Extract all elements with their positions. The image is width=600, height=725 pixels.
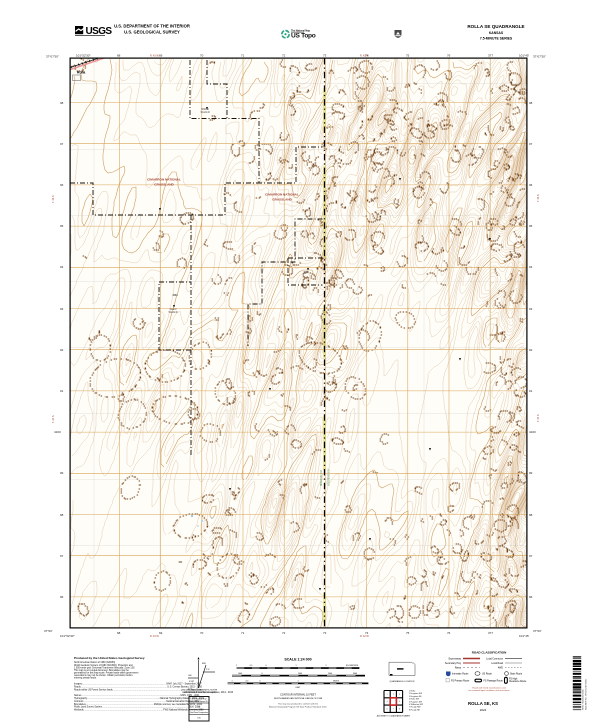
svg-text:FEET: FEET <box>296 687 302 689</box>
svg-text:377: 377 <box>488 54 493 58</box>
svg-text:1081: 1081 <box>172 294 178 297</box>
svg-text:76: 76 <box>447 54 451 58</box>
svg-text:96: 96 <box>529 595 533 599</box>
svg-text:4 Rolla SW: 4 Rolla SW <box>409 699 419 701</box>
svg-text:98: 98 <box>529 513 533 517</box>
svg-text:2: 2 <box>325 665 326 667</box>
svg-text:Clearance Route: Clearance Route <box>509 680 527 683</box>
svg-text:KANSAS: KANSAS <box>489 31 504 35</box>
svg-text:101°45′: 101°45′ <box>519 54 530 58</box>
svg-text:USGS: USGS <box>86 26 113 37</box>
svg-text:08: 08 <box>529 101 533 105</box>
svg-text:68: 68 <box>117 54 121 58</box>
svg-text:1: 1 <box>236 665 237 667</box>
svg-text:STEVENS CO: STEVENS CO <box>327 469 331 486</box>
svg-text:99: 99 <box>529 471 533 475</box>
svg-text:05: 05 <box>529 224 533 228</box>
svg-text:ROLLA SE, KS: ROLLA SE, KS <box>468 701 498 706</box>
svg-text:4100: 4100 <box>529 430 536 434</box>
svg-text:NSN. 7643014674381: NSN. 7643014674381 <box>583 689 585 710</box>
svg-text:Boundaries....................: Boundaries..............................… <box>74 703 203 706</box>
svg-text:QUADRANGLE LOCATION: QUADRANGLE LOCATION <box>390 680 415 683</box>
svg-text:02: 02 <box>529 348 533 352</box>
svg-text:T. 33 S.: T. 33 S. <box>52 195 55 203</box>
svg-text:Grid Zone Designation: Grid Zone Designation <box>190 711 208 714</box>
svg-text:37°00′: 37°00′ <box>533 629 542 633</box>
svg-text:69: 69 <box>159 631 163 635</box>
svg-text:1080: 1080 <box>303 271 309 274</box>
svg-text:75: 75 <box>406 631 410 635</box>
svg-text:71: 71 <box>241 631 245 635</box>
svg-text:Produced by the United States: Produced by the United States Geological… <box>74 656 145 660</box>
svg-text:US Topo: US Topo <box>291 33 316 40</box>
svg-text:96: 96 <box>60 595 64 599</box>
svg-text:03: 03 <box>60 307 64 311</box>
svg-text:72: 72 <box>282 631 286 635</box>
svg-text:98: 98 <box>60 513 64 517</box>
svg-text:2000: 2000 <box>328 673 332 675</box>
svg-text:CONTOUR INTERVAL 10 FEET: CONTOUR INTERVAL 10 FEET <box>280 693 316 696</box>
svg-text:03: 03 <box>529 307 533 311</box>
svg-text:69: 69 <box>159 54 163 58</box>
svg-text:Interstate Route: Interstate Route <box>452 673 469 676</box>
svg-text:377: 377 <box>488 631 493 635</box>
svg-text:Imagery.......................: Imagery.................................… <box>74 683 202 686</box>
svg-text:NGA REF NO. USGSX24K76566: NGA REF NO. USGSX24K76566 <box>584 678 587 710</box>
svg-text:ROLLA SE QUADRANGLE: ROLLA SE QUADRANGLE <box>467 24 524 29</box>
svg-text:North American Datum of 1983 (: North American Datum of 1983 (NAD83) <box>74 661 115 664</box>
svg-text:This map was produced to confo: This map was produced to conform with th… <box>278 703 319 706</box>
svg-text:GN: GN <box>188 675 192 677</box>
svg-text:06: 06 <box>60 183 64 187</box>
svg-text:DECLINATION AT CENTER OF SHEET: DECLINATION AT CENTER OF SHEET <box>182 691 216 694</box>
svg-text:04: 04 <box>529 265 533 269</box>
svg-text:7 Hough NW: 7 Hough NW <box>409 707 421 709</box>
svg-text:37°07′30″: 37°07′30″ <box>46 55 59 59</box>
svg-text:R. 43 W.: R. 43 W. <box>150 635 160 638</box>
svg-text:CIMARRON NATIONAL: CIMARRON NATIONAL <box>147 178 181 182</box>
svg-text:Windmill: Windmill <box>168 311 178 314</box>
svg-text:37°00′: 37°00′ <box>44 629 53 633</box>
svg-text:GRASSLAND: GRASSLAND <box>272 198 292 202</box>
svg-text:101°45′: 101°45′ <box>519 634 530 638</box>
svg-text:1: 1 <box>295 665 296 667</box>
svg-text:MN: MN <box>202 663 206 665</box>
svg-text:72: 72 <box>282 54 286 58</box>
svg-text:Roads with listed classificati: Roads with listed classifications and <box>472 686 506 689</box>
svg-text:0.5: 0.5 <box>250 665 253 667</box>
svg-text:68: 68 <box>117 631 121 635</box>
svg-text:National Geospatial Program US: National Geospatial Program US Topo Prod… <box>269 706 328 709</box>
svg-text:Roads.........................: Roads...................................… <box>74 685 203 688</box>
svg-text:4WD: 4WD <box>498 667 503 669</box>
svg-text:NORTH AMERICAN VERTICAL DATUM: NORTH AMERICAN VERTICAL DATUM OF 1988 <box>274 697 323 700</box>
svg-text:76: 76 <box>447 631 451 635</box>
svg-text:U.S. GEOLOGICAL SURVEY: U.S. GEOLOGICAL SURVEY <box>124 30 180 35</box>
svg-text:Local Connector: Local Connector <box>486 657 503 660</box>
svg-text:73: 73 <box>323 631 327 635</box>
svg-text:SCALE 1:24 000: SCALE 1:24 000 <box>284 658 311 662</box>
svg-text:7.5-MINUTE SERIES: 7.5-MINUTE SERIES <box>480 36 513 40</box>
svg-text:Hydrography...................: Hydrography.............................… <box>74 697 205 700</box>
svg-text:0: 0 <box>261 673 262 675</box>
svg-text:Secondary Hwy: Secondary Hwy <box>445 662 462 665</box>
svg-text:70: 70 <box>200 54 204 58</box>
svg-text:CIMARRON NATIONAL: CIMARRON NATIONAL <box>265 193 299 197</box>
svg-text:07: 07 <box>529 142 533 146</box>
svg-text:Ramp: Ramp <box>455 667 462 669</box>
svg-text:75: 75 <box>406 54 410 58</box>
svg-text:Windmill: Windmill <box>200 111 210 114</box>
svg-text:T. 34 S.: T. 34 S. <box>537 414 540 422</box>
svg-text:06: 06 <box>529 183 533 187</box>
svg-text:1000: 1000 <box>238 673 242 675</box>
svg-text:02: 02 <box>60 348 64 352</box>
svg-text:Rolla: Rolla <box>77 71 85 75</box>
svg-text:Names.........................: Names...................................… <box>74 695 200 697</box>
svg-text:State Route: State Route <box>510 673 523 676</box>
svg-text:97: 97 <box>60 554 64 558</box>
svg-text:07: 07 <box>60 142 64 146</box>
svg-text:R. 43 W.: R. 43 W. <box>150 55 160 58</box>
svg-text:MORTON CO: MORTON CO <box>319 470 323 486</box>
svg-text:T. 34 S.: T. 34 S. <box>52 415 55 423</box>
svg-text:73: 73 <box>323 54 327 58</box>
svg-text:99: 99 <box>60 471 64 475</box>
svg-text:ADJOINING 7.5′ QUADRANGLE NAME: ADJOINING 7.5′ QUADRANGLE NAMES <box>377 715 411 718</box>
svg-text:97: 97 <box>529 554 533 558</box>
svg-text:4100: 4100 <box>54 430 61 434</box>
svg-text:0: 0 <box>259 681 260 683</box>
svg-text:8 Hough NE: 8 Hough NE <box>409 709 421 711</box>
svg-text:FS Primary Route: FS Primary Route <box>451 680 470 683</box>
svg-text:R. 42 W.: R. 42 W. <box>360 635 370 638</box>
svg-text:04: 04 <box>60 265 64 269</box>
svg-text:1000: 1000 <box>298 673 302 675</box>
svg-text:6 Wilburton NW: 6 Wilburton NW <box>409 703 423 706</box>
svg-text:KILOMETERS: KILOMETERS <box>346 665 359 667</box>
svg-text:08: 08 <box>60 101 64 105</box>
svg-text:100,000-m Square ID: 100,000-m Square ID <box>190 701 208 703</box>
svg-text:be reviewed legal conditions a: be reviewed legal conditions and restric… <box>469 689 510 692</box>
svg-text:US Route: US Route <box>482 673 493 676</box>
svg-text:101°52′30″: 101°52′30″ <box>76 54 91 58</box>
svg-text:U.S. National Grid: U.S. National Grid <box>192 697 206 700</box>
svg-text:37°07′30″: 37°07′30″ <box>533 55 546 59</box>
svg-text:reservations may not be shown.: reservations may not be shown. Obtain pe… <box>74 674 133 677</box>
svg-text:3 Hugoton NE: 3 Hugoton NE <box>409 695 422 698</box>
svg-text:Local Road: Local Road <box>491 663 503 665</box>
svg-text:FS High: FS High <box>509 679 518 681</box>
svg-text:0: 0 <box>265 665 266 667</box>
svg-text:ROAD CLASSIFICATION: ROAD CLASSIFICATION <box>472 651 507 655</box>
svg-text:2022: 2022 <box>480 708 487 712</box>
svg-text:2°4′: 2°4′ <box>206 669 210 671</box>
svg-text:T. 33 S.: T. 33 S. <box>537 194 540 202</box>
svg-text:2 Hugoton NW: 2 Hugoton NW <box>409 692 422 695</box>
svg-text:Public Land Survey System.....: Public Land Survey System...............… <box>74 706 201 709</box>
svg-text:0.5: 0.5 <box>246 681 249 683</box>
svg-text:entering private lands.: entering private lands. <box>74 677 97 680</box>
svg-text:70: 70 <box>200 631 204 635</box>
svg-text:1 Rolla: 1 Rolla <box>409 691 416 693</box>
svg-text:R. 42 W.: R. 42 W. <box>360 55 370 58</box>
svg-text:05: 05 <box>60 224 64 228</box>
svg-text:Expressway: Expressway <box>449 657 462 660</box>
svg-text:5 Hugoton SW: 5 Hugoton SW <box>409 700 422 703</box>
svg-text:U.S. DEPARTMENT OF THE INTERIO: U.S. DEPARTMENT OF THE INTERIOR <box>114 24 190 29</box>
svg-text:3000: 3000 <box>353 673 357 675</box>
svg-text:01: 01 <box>529 389 533 393</box>
svg-text:01: 01 <box>60 389 64 393</box>
svg-text:1: 1 <box>231 681 232 683</box>
svg-text:71: 71 <box>241 54 245 58</box>
svg-text:This map is not a legal docume: This map is not a legal document. Bounda… <box>74 669 129 672</box>
svg-text:GRASSLAND: GRASSLAND <box>154 183 174 187</box>
svg-text:Contours......................: Contours................................… <box>74 700 200 703</box>
svg-text:1: 1 <box>297 681 298 683</box>
svg-text:101°52′30″: 101°52′30″ <box>60 634 75 638</box>
svg-text:MILES: MILES <box>333 681 339 683</box>
svg-text:FS Passage Route: FS Passage Route <box>484 680 504 683</box>
svg-text:Wetlands......................: Wetlands................................… <box>74 709 204 712</box>
svg-text:0°28′: 0°28′ <box>189 681 195 683</box>
